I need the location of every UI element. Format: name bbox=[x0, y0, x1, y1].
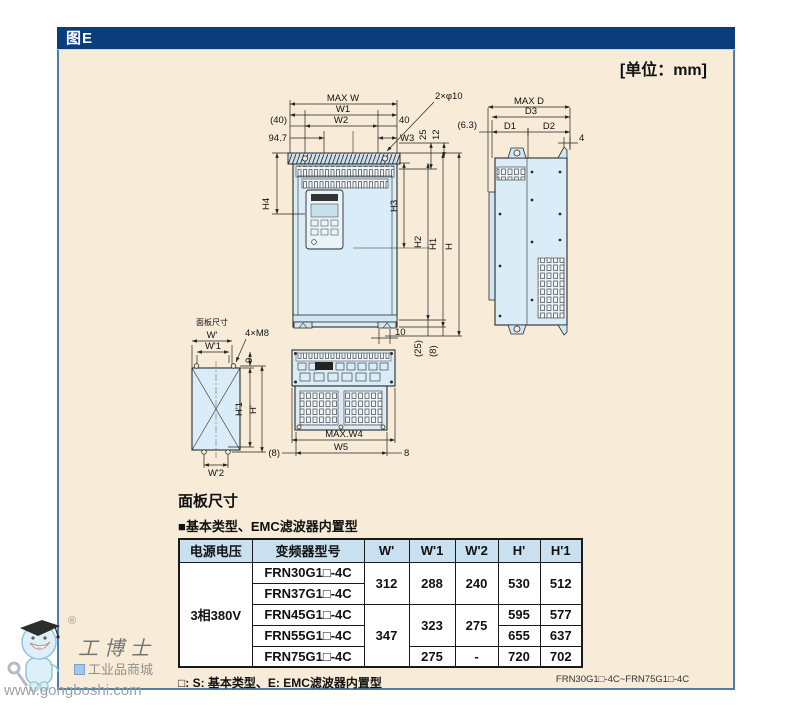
section-title: 面板尺寸 bbox=[178, 490, 590, 511]
value-cell: 595 bbox=[498, 604, 540, 625]
col-w2: W'2 bbox=[455, 539, 498, 562]
col-h1: H'1 bbox=[540, 539, 582, 562]
watermark-url: www.gongboshi.com bbox=[4, 682, 142, 699]
col-model: 变频器型号 bbox=[252, 539, 364, 562]
tagline-box-icon bbox=[74, 664, 85, 675]
unit-label: [单位：mm] bbox=[555, 56, 707, 80]
col-w1: W'1 bbox=[409, 539, 455, 562]
value-cell: - bbox=[455, 646, 498, 667]
watermark: ® 工博士 工业品商城 www.gongboshi.com bbox=[6, 612, 181, 707]
model-cell: FRN45G1□-4C bbox=[252, 604, 364, 625]
table-header-row: 电源电压 变频器型号 W' W'1 W'2 H' H'1 bbox=[179, 539, 582, 562]
page: 图E [单位：mm] bbox=[0, 0, 790, 710]
table-row: 3相380V FRN30G1□-4C 312 288 240 530 512 bbox=[179, 562, 582, 583]
registered-mark: ® bbox=[68, 615, 76, 627]
value-cell: 577 bbox=[540, 604, 582, 625]
value-cell: 240 bbox=[455, 562, 498, 604]
value-cell: 347 bbox=[364, 604, 409, 667]
col-voltage: 电源电压 bbox=[179, 539, 252, 562]
voltage-cell: 3相380V bbox=[179, 562, 252, 667]
value-cell: 275 bbox=[409, 646, 455, 667]
figure-titlebar: 图E bbox=[57, 27, 735, 50]
col-w: W' bbox=[364, 539, 409, 562]
value-cell: 288 bbox=[409, 562, 455, 604]
value-cell: 323 bbox=[409, 604, 455, 646]
value-cell: 312 bbox=[364, 562, 409, 604]
value-cell: 530 bbox=[498, 562, 540, 604]
value-cell: 637 bbox=[540, 625, 582, 646]
model-cell: FRN37G1□-4C bbox=[252, 583, 364, 604]
section-subtitle: ■基本类型、EMC滤波器内置型 bbox=[178, 516, 590, 535]
watermark-brand: 工博士 bbox=[78, 632, 156, 661]
value-cell: 655 bbox=[498, 625, 540, 646]
dimension-table: 电源电压 变频器型号 W' W'1 W'2 H' H'1 3相380V FRN3… bbox=[178, 538, 583, 668]
model-cell: FRN30G1□-4C bbox=[252, 562, 364, 583]
value-cell: 702 bbox=[540, 646, 582, 667]
watermark-tagline: 工业品商城 bbox=[74, 659, 153, 678]
figure-label: 图E bbox=[66, 30, 93, 47]
value-cell: 275 bbox=[455, 604, 498, 646]
model-range-label: FRN30G1□-4C~FRN75G1□-4C bbox=[525, 674, 720, 685]
model-cell: FRN55G1□-4C bbox=[252, 625, 364, 646]
col-h: H' bbox=[498, 539, 540, 562]
panel-dimensions-section: 面板尺寸 ■基本类型、EMC滤波器内置型 电源电压 变频器型号 W' W'1 W… bbox=[178, 490, 590, 691]
model-cell: FRN75G1□-4C bbox=[252, 646, 364, 667]
value-cell: 720 bbox=[498, 646, 540, 667]
value-cell: 512 bbox=[540, 562, 582, 604]
